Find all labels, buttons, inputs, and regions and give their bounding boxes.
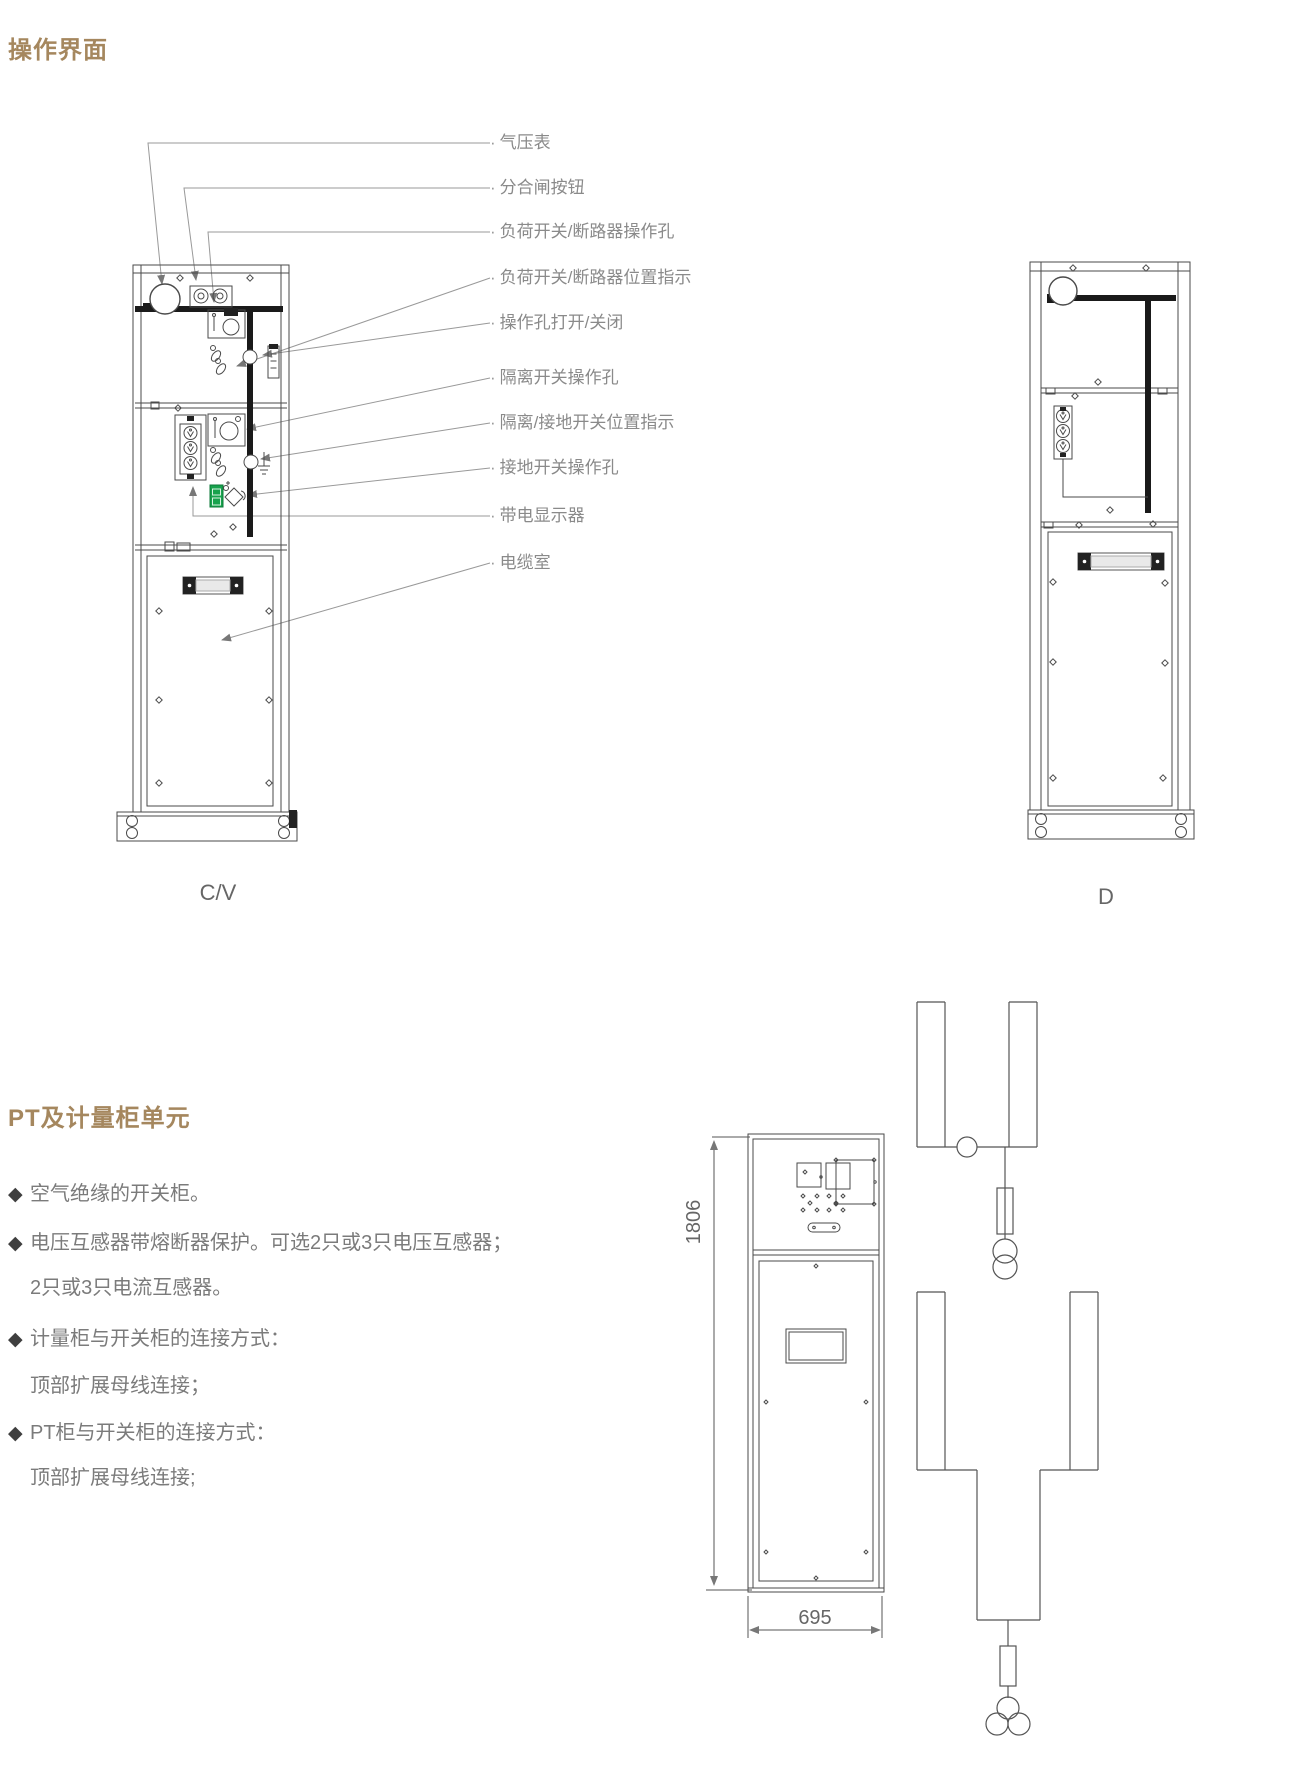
voltage-indicator-strip-d (1054, 406, 1072, 459)
pt-winding-b (986, 1713, 1008, 1735)
pt-bullet-2: ◆电压互感器带熔断器保护。可选2只或3只电压互感器； (8, 1230, 512, 1256)
dot-icon: · (490, 178, 496, 197)
callout-iso-ground-indicator: ·隔离/接地开关位置指示 (490, 412, 674, 434)
callout-live-display: ·带电显示器 (490, 505, 585, 527)
catalog-page: 1806 695 (0, 0, 1307, 1782)
dot-icon: · (490, 368, 496, 387)
circuit-diagram-lower (917, 1292, 1098, 1735)
fuse-symbol (1000, 1646, 1016, 1686)
cable-compartment-door-d (1048, 532, 1172, 806)
circuit-diagram-upper (917, 1002, 1037, 1279)
leader-hole-open-close (263, 323, 490, 355)
pressure-gauge (150, 284, 180, 314)
callout-iso-operation-hole: ·隔离开关操作孔 (490, 367, 619, 389)
callout-open-close-buttons: ·分合闸按钮 (490, 177, 585, 199)
callout-ground-operation-hole: ·接地开关操作孔 (490, 457, 619, 479)
isolation-operation-hole (208, 414, 245, 446)
pt-bullet-3-cont: 顶部扩展母线连接； (8, 1373, 210, 1399)
cabinet-label-cv: C/V (178, 880, 258, 906)
pt-bullet-4: ◆PT柜与开关柜的连接方式： (8, 1420, 276, 1446)
pt-winding-c (1008, 1713, 1030, 1735)
pt-bullet-1: ◆空气绝缘的开关柜。 (8, 1181, 210, 1207)
dot-icon: · (490, 313, 496, 332)
ground-operation-hole (224, 486, 246, 507)
dot-icon: · (490, 268, 496, 287)
section-title-pt-unit: PT及计量柜单元 (8, 1098, 191, 1133)
leader-ground-operation-hole (248, 468, 490, 495)
cabinet-d (1028, 262, 1194, 839)
pt-winding-a (997, 1697, 1019, 1719)
cabinet-cv (117, 265, 297, 841)
live-display (183, 577, 243, 594)
breaker-position-indicator (210, 344, 279, 378)
leader-position-indicator (237, 278, 490, 366)
live-display-d (1078, 553, 1164, 570)
leader-pressure-gauge (148, 143, 490, 284)
dot-icon: · (490, 553, 496, 572)
callout-leader-lines (148, 143, 490, 640)
callout-hole-open-close: ·操作孔打开/关闭 (490, 312, 623, 334)
leader-open-close-buttons (184, 188, 490, 280)
vent-marks (801, 1194, 845, 1212)
pt-door (759, 1261, 873, 1581)
pt-bullet-3: ◆计量柜与开关柜的连接方式： (8, 1326, 290, 1352)
section-title-operation: 操作界面 (8, 30, 108, 65)
dimension-height: 1806 (683, 1200, 705, 1245)
breaker-operation-hole (208, 308, 245, 338)
callout-breaker-operation-hole: ·负荷开关/断路器操作孔 (490, 221, 674, 243)
dot-icon: · (490, 133, 496, 152)
pt-winding-1 (993, 1239, 1017, 1263)
diamond-bullet-icon: ◆ (8, 1421, 30, 1447)
leader-operation-hole (208, 232, 490, 302)
indicator-symbol (957, 1137, 977, 1157)
leader-cable-compartment (222, 563, 490, 640)
diamond-bullet-icon: ◆ (8, 1182, 30, 1208)
callout-cable-compartment: ·电缆室 (490, 552, 551, 574)
dot-icon: · (490, 506, 496, 525)
voltage-indicator-strip (175, 415, 206, 480)
callout-pressure-gauge: ·气压表 (490, 132, 551, 154)
instrument-panel (797, 1158, 876, 1232)
dot-icon: · (490, 458, 496, 477)
iso-ground-position-indicator (210, 448, 270, 478)
pt-bullet-4-cont: 顶部扩展母线连接; (8, 1465, 196, 1491)
leader-iso-ground-indicator (261, 423, 490, 459)
pt-winding-2 (993, 1255, 1017, 1279)
cabinet-label-d: D (1066, 884, 1146, 910)
dimension-width: 695 (798, 1607, 831, 1629)
pressure-gauge-d (1049, 277, 1077, 305)
diamond-bullet-icon: ◆ (8, 1231, 30, 1257)
dimension-lines: 1806 695 (683, 1137, 882, 1638)
diamond-bullet-icon: ◆ (8, 1327, 30, 1353)
dot-icon: · (490, 413, 496, 432)
dot-icon: · (490, 222, 496, 241)
pt-cabinet (748, 1134, 884, 1592)
open-close-buttons (190, 286, 232, 307)
pt-bullet-2-cont: 2只或3只电流互感器。 (8, 1275, 232, 1301)
ground-switch-indicator (210, 481, 230, 507)
callout-breaker-position-indicator: ·负荷开关/断路器位置指示 (490, 267, 691, 289)
